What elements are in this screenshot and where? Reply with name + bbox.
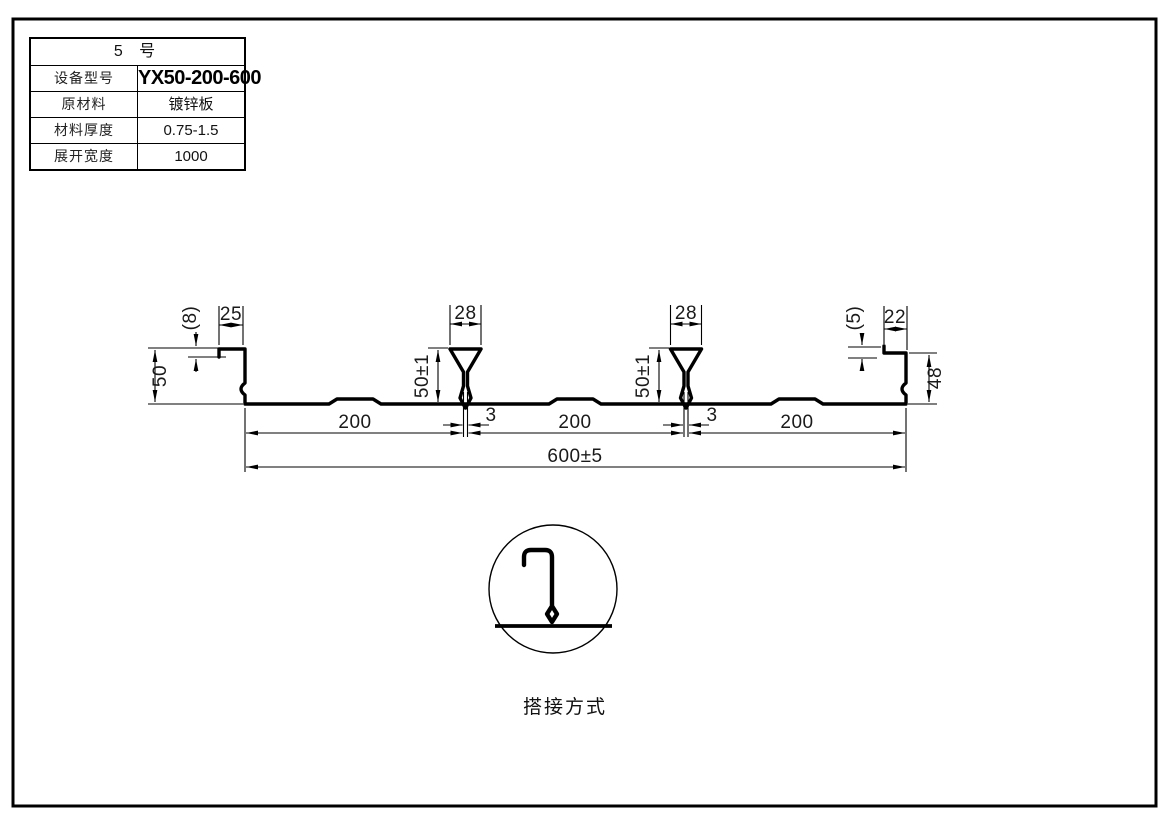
sheet-profile-path <box>219 346 906 404</box>
spec-label-model: 设备型号 <box>31 66 138 91</box>
sheet-number: 5 号 <box>31 39 244 65</box>
spec-value-thickness: 0.75-1.5 <box>138 118 244 143</box>
spec-label-material: 原材料 <box>31 92 138 117</box>
dimension-lines <box>148 305 937 472</box>
profile-outline <box>219 346 906 408</box>
dim-left-lip: 25 <box>220 304 242 325</box>
spec-row-material: 原材料 镀锌板 <box>31 91 244 117</box>
title-block: 5 号 设备型号 YX50-200-600 原材料 镀锌板 材料厚度 0.75-… <box>29 37 246 171</box>
spec-label-width: 展开宽度 <box>31 144 138 169</box>
spec-value-material: 镀锌板 <box>138 92 244 117</box>
dim-overall-width: 600±5 <box>547 446 602 467</box>
spec-row-width: 展开宽度 1000 <box>31 143 244 169</box>
dim-pitch-3: 200 <box>780 412 813 433</box>
dimension-texts: 50 (8) 25 28 50±1 3 28 50±1 3 (5) 22 48 … <box>150 303 946 467</box>
dovetail-rib-2 <box>671 349 702 408</box>
dovetail-rib-1 <box>450 349 481 408</box>
dim-rib1-width: 28 <box>454 303 476 324</box>
lap-joint-hook <box>524 550 557 622</box>
dim-pitch-1: 200 <box>338 412 371 433</box>
drawing-sheet: 50 (8) 25 28 50±1 3 28 50±1 3 (5) 22 48 … <box>0 0 1169 827</box>
spec-value-width: 1000 <box>138 144 244 169</box>
title-block-header: 5 号 <box>31 39 244 65</box>
dim-left-hook: (8) <box>180 306 201 331</box>
dim-right-height: 48 <box>925 367 946 389</box>
spec-row-thickness: 材料厚度 0.75-1.5 <box>31 117 244 143</box>
lap-caption: 搭接方式 <box>500 692 630 719</box>
dim-rib1-height: 50±1 <box>412 354 433 398</box>
spec-value-model: YX50-200-600 <box>138 66 261 91</box>
dim-rib2-height: 50±1 <box>633 354 654 398</box>
spec-row-model: 设备型号 YX50-200-600 <box>31 65 244 91</box>
dim-rib1-slot: 3 <box>485 405 496 426</box>
dim-left-height: 50 <box>150 365 171 387</box>
spec-label-thickness: 材料厚度 <box>31 118 138 143</box>
dim-right-hook: (5) <box>844 306 865 331</box>
dim-rib2-width: 28 <box>675 303 697 324</box>
dim-right-lip: 22 <box>884 307 906 328</box>
lap-joint-detail <box>489 525 617 653</box>
dim-rib2-slot: 3 <box>706 405 717 426</box>
dim-pitch-2: 200 <box>558 412 591 433</box>
